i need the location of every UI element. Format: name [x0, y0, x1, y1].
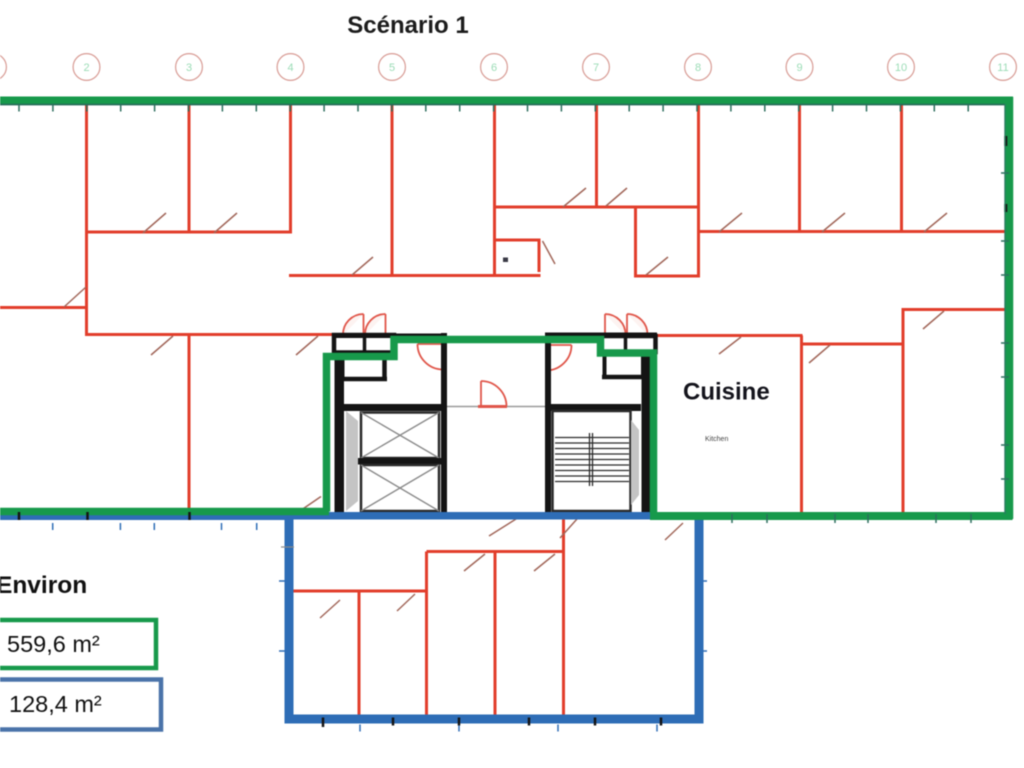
svg-text:8: 8	[695, 62, 701, 74]
svg-text:5: 5	[389, 62, 395, 74]
svg-text:7: 7	[593, 62, 599, 74]
svg-text:4: 4	[287, 62, 293, 74]
svg-text:9: 9	[796, 62, 802, 74]
svg-text:3: 3	[186, 62, 192, 74]
svg-text:6: 6	[491, 62, 497, 74]
svg-text:128,4 m²: 128,4 m²	[9, 691, 102, 717]
svg-text:2: 2	[83, 62, 89, 74]
svg-text:Environ: Environ	[0, 572, 87, 599]
svg-text:10: 10	[895, 62, 907, 74]
svg-text:Kitchen: Kitchen	[705, 436, 728, 443]
svg-text:559,6 m²: 559,6 m²	[7, 631, 100, 657]
svg-text:Scénario 1: Scénario 1	[347, 12, 468, 39]
svg-text:Cuisine: Cuisine	[683, 379, 770, 406]
svg-text:11: 11	[997, 62, 1008, 74]
